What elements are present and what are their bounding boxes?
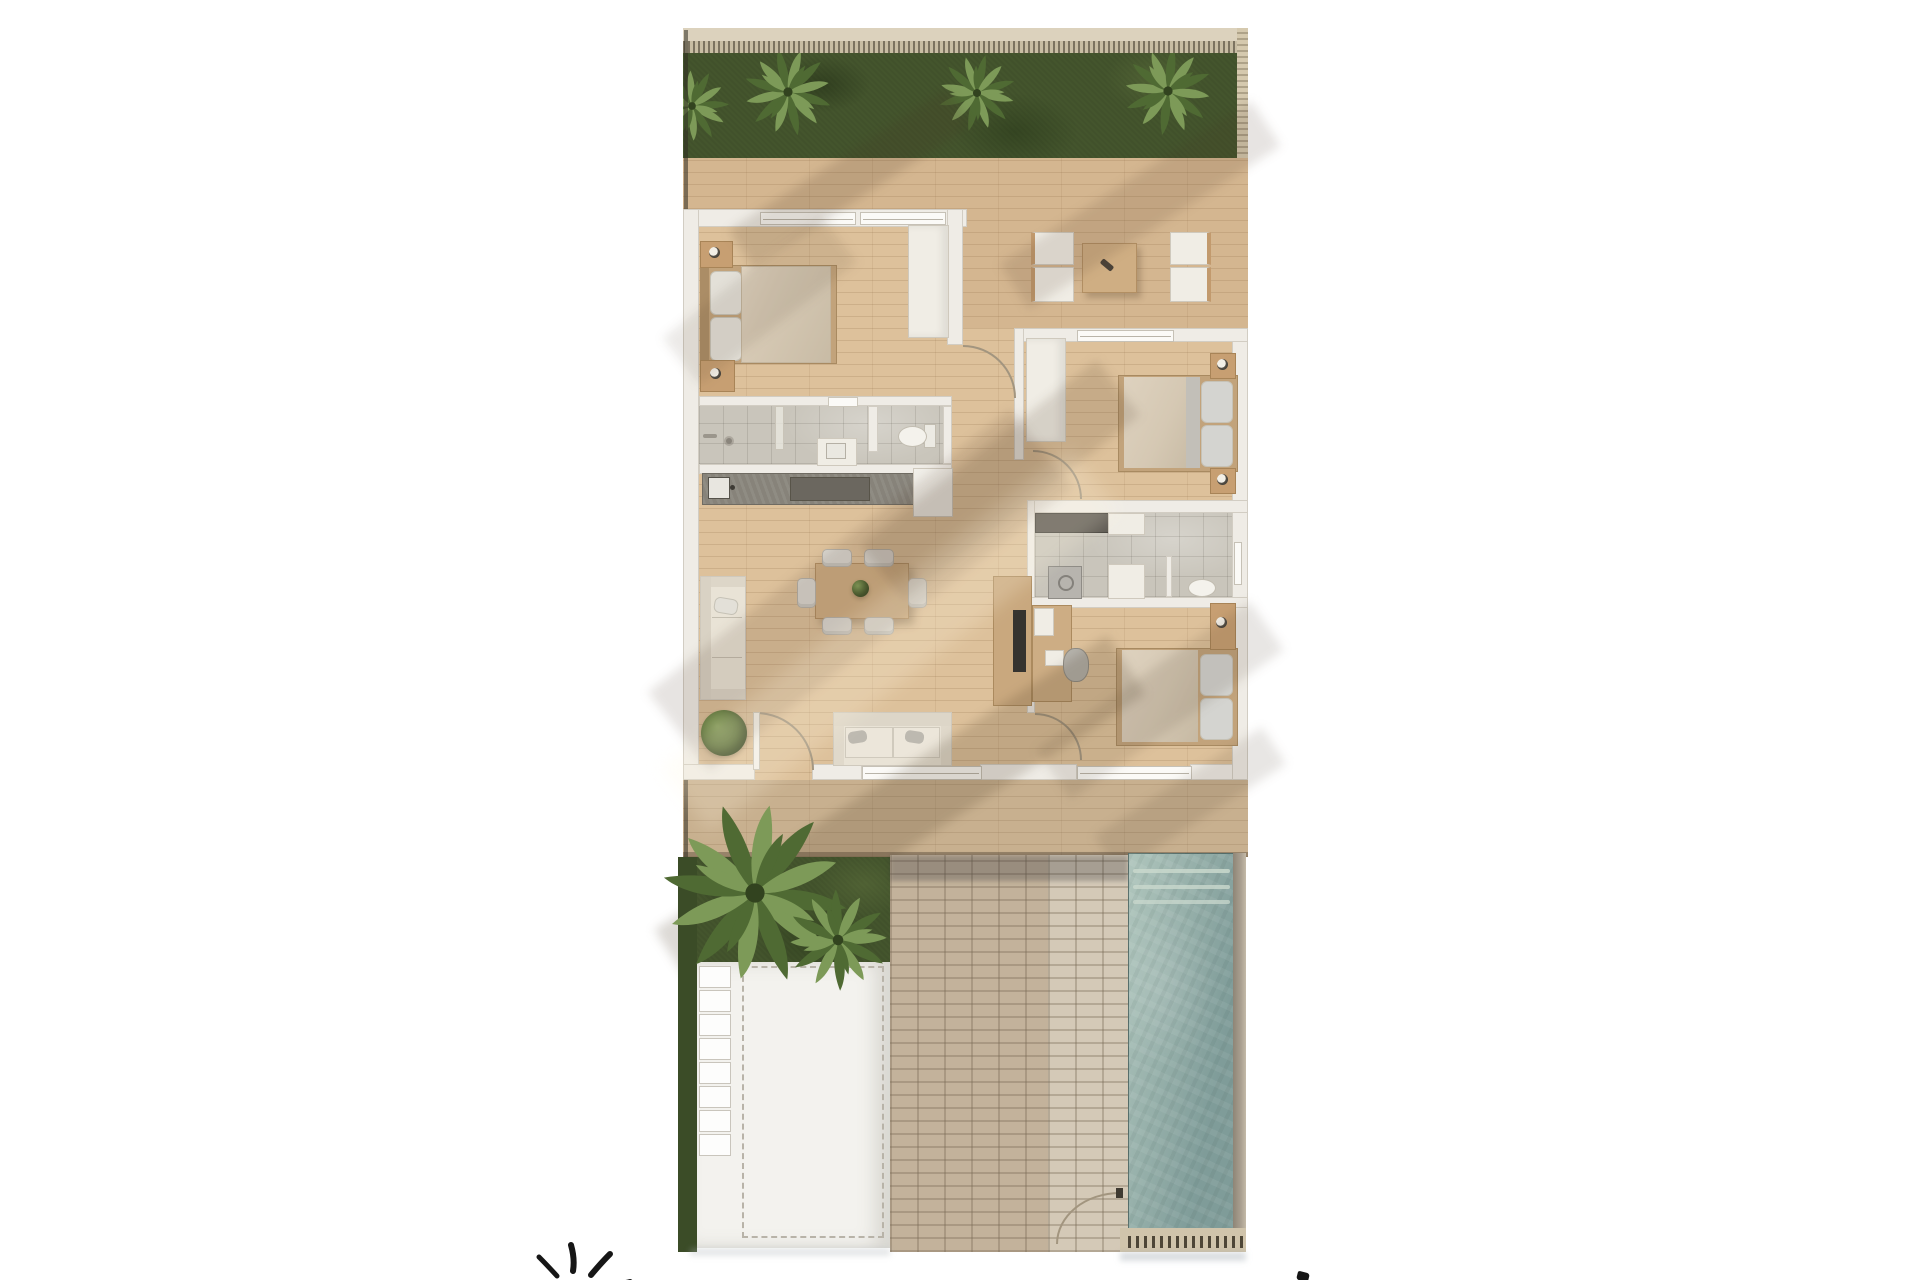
bed-throw [1186, 377, 1200, 468]
desk-printer [1034, 608, 1054, 636]
wall-bathroom2-top [1027, 500, 1248, 513]
paver-tile [699, 1086, 731, 1108]
floor-plant [701, 710, 747, 756]
lounge-chair [1170, 232, 1211, 265]
bathroom2-divider [1166, 556, 1172, 597]
pool-step [1133, 900, 1230, 904]
lounge-chair [1170, 267, 1211, 302]
pool-wall-right [1233, 853, 1246, 1252]
wall-bathroom1-top [699, 396, 952, 406]
lounge-chair [1031, 232, 1074, 265]
washing-machine-door [1058, 575, 1074, 591]
dining-table-plant [852, 580, 869, 597]
wardrobe [1026, 338, 1066, 442]
toilet-bowl [1188, 579, 1216, 597]
window-master-2 [860, 212, 946, 225]
window-living-slider [862, 766, 982, 780]
paver-tile [699, 1134, 731, 1156]
window-master-1 [760, 212, 856, 225]
bed-pillow [710, 271, 742, 315]
pool-grate [1128, 1236, 1246, 1248]
brick-path-dark [890, 855, 1048, 1252]
bed-pillow [1201, 425, 1233, 467]
kitchen-faucet [730, 485, 735, 490]
kitchen-cabinet [913, 468, 953, 517]
fence-hedge [683, 41, 1248, 53]
nightstand-lamp [1216, 617, 1227, 628]
wall-bottom-c [980, 764, 1077, 780]
lounge-chair [1031, 267, 1074, 302]
wall-bathroom1-right [943, 406, 952, 464]
nightstand-lamp [1217, 359, 1228, 370]
dining-chair [864, 549, 894, 567]
bed-duvet [1122, 650, 1198, 742]
cropped-mark [1296, 1271, 1310, 1280]
kitchen-stove [790, 477, 870, 501]
nightstand-lamp [710, 368, 721, 379]
bed-duvet [741, 266, 831, 363]
bed-headboard [700, 265, 709, 362]
window-bedroom2 [1077, 330, 1174, 342]
pool-step [1133, 869, 1230, 873]
bed-pillow [710, 317, 742, 361]
pool-step [1133, 885, 1230, 889]
sink-basin [826, 443, 846, 459]
dining-chair [822, 617, 852, 635]
nightstand-lamp [709, 247, 720, 258]
palm-tree-icon [683, 66, 732, 146]
paver-tile [699, 1014, 731, 1036]
desk-item [1045, 650, 1064, 666]
brick-top-shadow [890, 855, 1128, 881]
bed-pillow [1200, 698, 1233, 740]
bathroom2-sink [1108, 513, 1145, 535]
wall-left [683, 209, 699, 780]
wall-master-right [947, 209, 963, 345]
sofa-cushion-line [712, 617, 742, 618]
sofa-cushion-line [712, 657, 742, 658]
palm-tree-icon [1100, 53, 1235, 158]
tv-screen [1013, 610, 1026, 672]
dining-chair [822, 549, 852, 567]
toilet-bowl [898, 426, 927, 447]
window-bathroom2 [1234, 542, 1242, 585]
garden-lawn [683, 53, 1237, 158]
shower-glass-divider [775, 406, 784, 450]
wardrobe [908, 225, 949, 338]
fence-fascia [683, 28, 1248, 42]
shower-tray [1108, 564, 1145, 599]
door-living-leaf [753, 712, 760, 770]
gate-post [1116, 1188, 1123, 1198]
sofa-left [700, 576, 746, 700]
fence-post-right [1237, 28, 1248, 172]
sun-logo-icon [470, 1215, 690, 1280]
palm-tree-icon [926, 53, 1029, 144]
window-bedroom3-slider [1077, 766, 1192, 780]
bathroom1-threshold [828, 397, 858, 407]
floor-plan-render [0, 0, 1920, 1280]
palm-tree-icon [726, 53, 849, 154]
pool-water [1128, 853, 1235, 1230]
shower-drain [726, 438, 732, 444]
wall-bottom-b [812, 764, 862, 780]
nightstand-lamp [1217, 474, 1228, 485]
dining-chair [864, 617, 894, 635]
dining-chair [797, 578, 816, 608]
paver-tile [699, 1110, 731, 1132]
paver-tile [699, 990, 731, 1012]
ground-shadow [690, 1248, 890, 1256]
kitchen-sink [708, 477, 730, 499]
wall-bathroom1-stub [868, 406, 878, 452]
dining-chair [908, 578, 927, 608]
bathroom2-counter [1035, 513, 1109, 533]
bed-pillow [1201, 381, 1233, 423]
desk-chair [1063, 648, 1089, 682]
paver-tile [699, 1062, 731, 1084]
bed-pillow [1200, 654, 1233, 696]
paver-tile [699, 1038, 731, 1060]
shower-handle [703, 434, 717, 438]
ground-shadow [1120, 1252, 1246, 1261]
